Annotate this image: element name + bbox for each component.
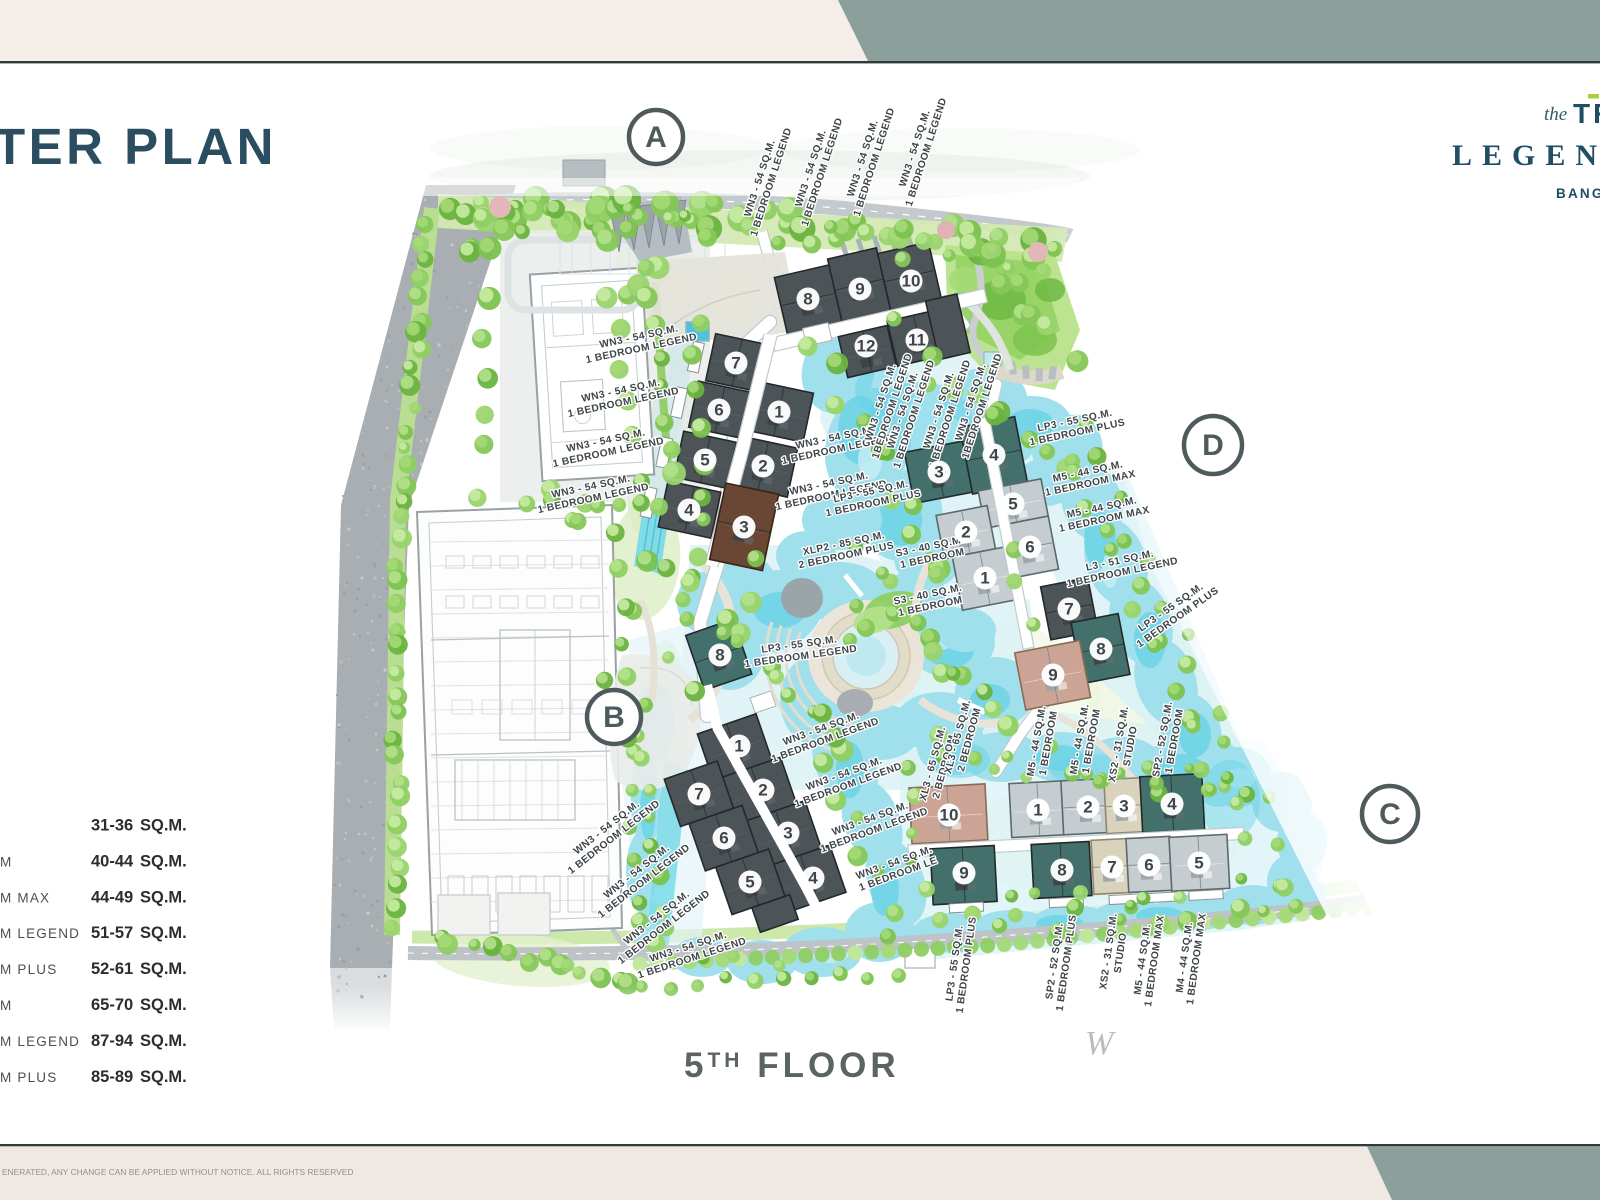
svg-text:2: 2 [758, 780, 767, 799]
svg-text:9: 9 [855, 279, 864, 298]
svg-text:8: 8 [1096, 639, 1105, 658]
svg-text:ENERATED, ANY CHANGE CAN BE AP: ENERATED, ANY CHANGE CAN BE APPLIED WITH… [2, 1167, 353, 1177]
svg-text:SQ.M.: SQ.M. [140, 1068, 187, 1086]
svg-text:M LEGEND: M LEGEND [0, 1034, 80, 1049]
svg-text:6: 6 [1025, 537, 1034, 556]
svg-text:52-61: 52-61 [91, 960, 133, 978]
svg-text:M: M [0, 998, 12, 1013]
svg-text:3: 3 [934, 462, 943, 481]
svg-text:SQ.M.: SQ.M. [140, 1032, 187, 1050]
svg-text:44-49: 44-49 [91, 888, 133, 906]
svg-text:10: 10 [902, 271, 921, 290]
svg-text:12: 12 [857, 336, 876, 355]
svg-text:85-89: 85-89 [91, 1068, 133, 1086]
svg-text:4: 4 [989, 445, 999, 464]
svg-text:7: 7 [694, 784, 703, 803]
svg-text:SQ.M.: SQ.M. [140, 817, 187, 835]
svg-text:8: 8 [715, 645, 724, 664]
svg-text:TR: TR [1573, 98, 1600, 129]
svg-text:5: 5 [1008, 494, 1017, 513]
svg-text:1: 1 [1033, 800, 1042, 819]
svg-text:8: 8 [803, 289, 812, 308]
svg-text:8: 8 [1057, 860, 1066, 879]
svg-text:6: 6 [1144, 855, 1153, 874]
svg-text:4: 4 [684, 500, 694, 519]
svg-text:M LEGEND: M LEGEND [0, 926, 80, 941]
svg-text:5: 5 [745, 872, 754, 891]
svg-text:87-94: 87-94 [91, 1032, 134, 1050]
svg-text:TER PLAN: TER PLAN [0, 118, 277, 175]
svg-text:9: 9 [1048, 665, 1057, 684]
svg-text:1: 1 [734, 736, 743, 755]
svg-text:31-36: 31-36 [91, 817, 133, 835]
svg-text:10: 10 [940, 805, 959, 824]
svg-text:7: 7 [1107, 857, 1116, 876]
svg-text:3: 3 [783, 823, 792, 842]
svg-text:SQ.M.: SQ.M. [140, 924, 187, 942]
svg-text:D: D [1202, 429, 1224, 462]
svg-text:SQ.M.: SQ.M. [140, 852, 187, 870]
svg-text:4: 4 [808, 868, 818, 887]
svg-text:2: 2 [1083, 797, 1092, 816]
svg-text:M: M [0, 854, 12, 869]
svg-text:7: 7 [731, 353, 740, 372]
svg-text:1: 1 [774, 402, 783, 421]
svg-text:LEGEN: LEGEN [1452, 139, 1600, 172]
svg-text:A: A [645, 121, 667, 154]
svg-text:W: W [1085, 1025, 1116, 1062]
svg-text:B: B [603, 701, 625, 734]
svg-text:6: 6 [714, 400, 723, 419]
svg-text:M MAX: M MAX [0, 890, 50, 905]
svg-text:1: 1 [980, 568, 989, 587]
svg-text:51-57: 51-57 [91, 924, 133, 942]
svg-text:7: 7 [1064, 599, 1073, 618]
svg-text:11: 11 [908, 330, 926, 349]
svg-text:BANG: BANG [1556, 186, 1600, 201]
svg-text:3: 3 [1119, 796, 1128, 815]
svg-text:6: 6 [719, 828, 728, 847]
svg-text:C: C [1379, 798, 1401, 831]
svg-text:2: 2 [961, 522, 970, 541]
svg-text:M PLUS: M PLUS [0, 1070, 57, 1085]
svg-text:5: 5 [700, 450, 709, 469]
svg-text:9: 9 [959, 863, 968, 882]
svg-text:5: 5 [1194, 853, 1203, 872]
svg-text:3: 3 [739, 517, 748, 536]
svg-text:2: 2 [758, 456, 767, 475]
svg-text:SQ.M.: SQ.M. [140, 960, 187, 978]
svg-text:4: 4 [1167, 794, 1177, 813]
svg-text:SQ.M.: SQ.M. [140, 996, 187, 1014]
svg-text:SQ.M.: SQ.M. [140, 888, 187, 906]
svg-text:the: the [1544, 104, 1567, 125]
svg-text:40-44: 40-44 [91, 852, 134, 870]
svg-text:65-70: 65-70 [91, 996, 133, 1014]
svg-text:M PLUS: M PLUS [0, 962, 57, 977]
